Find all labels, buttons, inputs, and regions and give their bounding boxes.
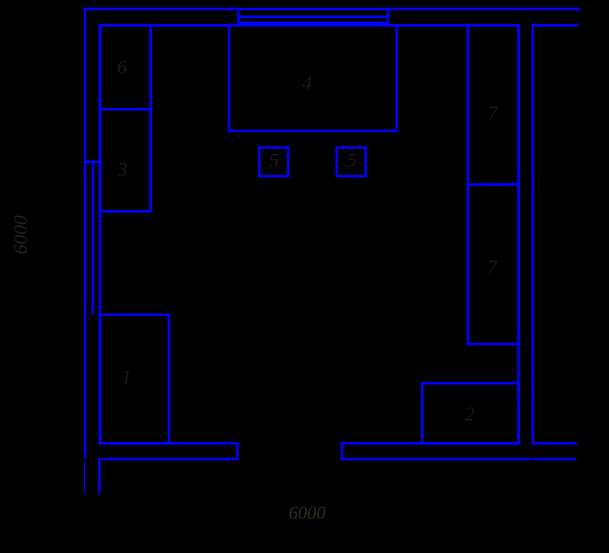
svg-text:6000: 6000 [11,215,32,254]
svg-text:7: 7 [487,257,498,279]
svg-text:3: 3 [117,159,128,181]
svg-text:6000: 6000 [289,504,327,524]
svg-text:5: 5 [269,150,279,172]
svg-text:5: 5 [347,150,357,172]
svg-text:6: 6 [117,57,127,79]
svg-text:2: 2 [465,404,475,426]
svg-text:1: 1 [122,367,132,389]
svg-text:7: 7 [488,103,499,125]
svg-text:4: 4 [302,73,312,95]
